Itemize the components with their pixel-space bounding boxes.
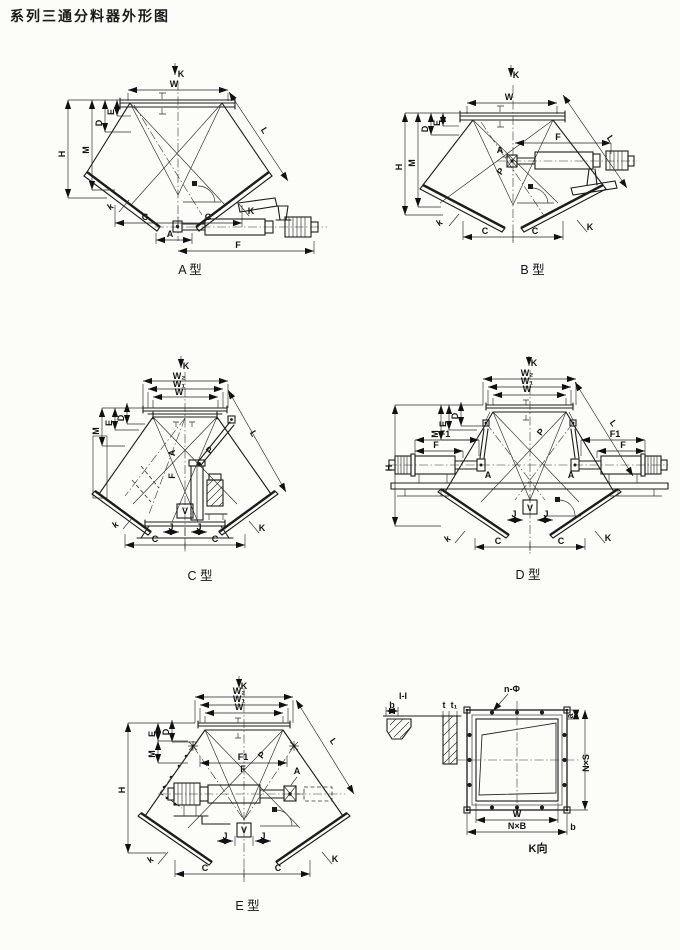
svg-text:K: K [531,358,538,368]
page-title: 系列三通分料器外形图 [10,6,170,26]
svg-text:M: M [81,146,91,154]
svg-text:C: C [205,212,212,222]
type-e-caption: E 型 [100,895,395,914]
svg-text:E: E [104,420,114,426]
type-b-caption: B 型 [385,259,680,278]
svg-text:n-Φ: n-Φ [504,684,520,694]
svg-text:M: M [407,159,417,167]
svg-text:K: K [587,222,594,232]
kview-drawing: n-ΦaN×SWN×Bb [452,683,624,838]
svg-text:b: b [570,822,576,832]
svg-text:E: E [432,120,442,126]
svg-text:J: J [260,831,265,841]
svg-text:D: D [161,728,171,735]
svg-text:k: k [442,532,453,544]
svg-text:D: D [450,412,460,419]
svg-text:L: L [605,133,617,144]
svg-text:N×S: N×S [581,754,591,772]
svg-text:F1: F1 [238,752,249,762]
svg-text:k: k [110,518,121,530]
diagram-type-a: KWEDMHLkCCKAF A 型 [35,55,345,278]
svg-text:P: P [495,166,507,177]
svg-text:C: C [495,536,502,546]
svg-text:H: H [394,164,404,171]
type-a-drawing: KWEDMHLkCCKAF [35,55,345,257]
svg-text:F1: F1 [440,429,451,439]
svg-text:b: b [389,700,395,710]
svg-text:M: M [147,750,157,758]
svg-text:W: W [523,384,532,394]
svg-text:A: A [167,229,174,239]
svg-text:H: H [384,465,394,472]
svg-text:P: P [256,750,268,761]
svg-text:N×B: N×B [508,821,527,831]
svg-text:C: C [142,212,149,222]
svg-text:K: K [183,361,190,371]
svg-text:J: J [222,831,227,841]
svg-text:K: K [332,854,339,864]
svg-text:L: L [328,736,340,747]
svg-text:C: C [558,536,565,546]
kview-caption: K向 [452,840,624,856]
svg-text:C: C [152,534,159,544]
svg-text:A: A [497,145,504,155]
svg-text:D: D [116,414,126,421]
svg-text:K: K [513,70,520,80]
svg-text:A: A [568,470,575,480]
svg-text:J: J [543,509,548,519]
svg-text:M: M [91,427,101,435]
svg-text:k: k [145,853,156,865]
svg-text:W: W [505,92,514,102]
drawing-sheet: 系列三通分料器外形图 [0,0,680,950]
svg-text:W: W [235,702,244,712]
svg-text:W: W [170,79,179,89]
svg-text:H: H [57,151,67,158]
svg-text:K: K [248,206,255,216]
type-b-drawing: KWEDMHLFAPkCCK [385,55,680,257]
diagram-type-e: KW₂W₁WDEMHF1FAPLVJJCCkK E 型 [100,668,395,914]
svg-text:W: W [175,387,184,397]
type-d-drawing: KW₂W₁WDEMHF1FF1FAAPLVJJCCkK [383,350,673,562]
svg-text:D: D [420,125,430,132]
type-e-drawing: KW₂W₁WDEMHF1FAPLVJJCCkK [100,668,395,893]
svg-text:J: J [196,522,201,532]
svg-text:F1: F1 [610,429,621,439]
section-ii-drawing: I-Ibtt₁ [383,685,463,793]
svg-text:K: K [605,533,612,543]
svg-text:K: K [259,523,266,533]
svg-text:V: V [182,506,188,516]
svg-text:k: k [105,200,116,212]
diagram-type-c: KW₂W₁WDEMLPAFVJJCCkK C 型 [85,348,315,584]
svg-text:A: A [485,470,492,480]
svg-text:I-I: I-I [399,691,407,701]
svg-text:t: t [443,700,446,710]
detail-section-ii: I-Ibtt₁ [383,685,463,793]
type-c-caption: C 型 [85,565,315,584]
svg-text:C: C [212,534,219,544]
svg-text:F: F [240,764,246,774]
svg-text:A: A [294,766,301,776]
svg-text:E: E [106,109,116,115]
svg-text:L: L [248,429,260,439]
svg-text:H: H [117,787,127,794]
svg-text:F: F [620,440,626,450]
diagram-type-b: KWEDMHLFAPkCCK B 型 [385,55,680,278]
svg-text:k: k [434,216,445,228]
diagram-type-d: KW₂W₁WDEMHF1FF1FAAPLVJJCCkK D 型 [383,350,673,583]
svg-text:D: D [94,119,104,126]
svg-text:A: A [167,449,177,456]
svg-text:C: C [532,226,539,236]
svg-text:F: F [433,440,439,450]
svg-text:E: E [438,421,448,427]
svg-text:V: V [527,503,533,513]
svg-text:C: C [202,863,209,873]
svg-text:F: F [555,132,561,142]
svg-text:L: L [608,418,620,429]
type-a-caption: A 型 [35,259,345,278]
svg-text:C: C [275,863,282,873]
svg-text:F: F [235,240,241,250]
svg-text:C: C [482,226,489,236]
svg-text:F: F [167,473,177,479]
svg-text:E: E [147,731,157,737]
type-d-caption: D 型 [383,564,673,583]
detail-kview: n-ΦaN×SWN×Bb K向 [452,683,624,856]
svg-text:L: L [259,125,271,135]
svg-text:P: P [204,445,216,456]
svg-text:M: M [430,430,440,438]
svg-text:V: V [241,825,247,835]
svg-text:J: J [511,509,516,519]
svg-text:K: K [178,69,185,79]
svg-text:J: J [168,522,173,532]
svg-text:P: P [535,427,547,438]
type-c-drawing: KW₂W₁WDEMLPAFVJJCCkK [85,348,315,563]
svg-text:W: W [513,809,522,819]
